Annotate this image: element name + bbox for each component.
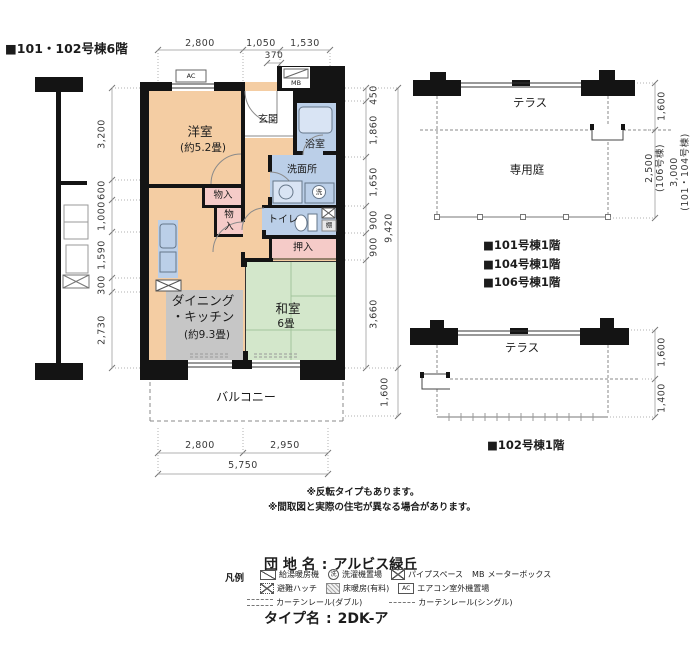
legend-title: 凡例 [225,570,244,584]
upper-terrace-label: テラス [513,96,547,111]
dim-left-4: 1,590 [98,240,109,270]
floorplan-sheet: ■101・102号棟6階 洋室 (約5.2畳) ダイニング ・キッチン (約9.… [0,0,700,650]
dim-right-total: 9,420 [385,213,396,243]
bath-label: 浴室 [305,139,325,152]
site-lower-diagram [410,318,658,421]
legend-ac-outdoor: AC エアコン室外機置場 [398,583,489,594]
bathtub-icon [299,107,332,133]
legend-hatch: 避難ハッチ [260,583,317,594]
sheet-title: ■101・102号棟6階 [5,38,128,57]
top-window [172,82,214,91]
dim-garden-101: 3,000 (101・104号棟) [670,133,692,211]
dim-left-5: 300 [98,275,109,295]
dim-top-sub: 370 [265,51,284,63]
caption-106: ■106号棟1階 [483,274,560,290]
dim-right-6: 3,660 [370,299,381,329]
legend-curtain-single: カーテンレール(シングル) [389,597,512,608]
balcony-label: バルコニー [216,390,276,406]
escape-hatch-legend-icon [260,583,274,594]
dim-right-5: 900 [370,237,381,257]
floor-heating-icon [326,583,340,594]
legend-pipe-space: パイプスペース [391,569,463,580]
dim-bottom-1: 2,800 [185,440,215,452]
upper-dim-terrace: 1,600 [658,91,669,121]
escape-hatch-icon [156,280,181,291]
dim-right-2: 1,860 [370,115,381,145]
estate-type-value: 2DK-ア [338,610,389,628]
site-upper-diagram [413,70,672,221]
dk-size: (約9.3畳) [184,329,230,343]
lower-terrace-label: テラス [505,341,539,356]
dim-top-1: 2,800 [185,38,215,50]
curtain-single-icon [389,602,415,603]
oshiire-label: 押入 [293,242,313,255]
hatch-x-icon [63,275,89,288]
dim-balcony-depth: 1,600 [381,377,392,407]
washer-mark-label: 洗 [316,188,323,196]
western-room-size: (約5.2畳) [180,142,226,156]
ac-label: AC [187,72,196,80]
sink-icon [273,181,302,203]
dim-top-3: 1,530 [290,38,320,50]
dim-left-1: 3,200 [98,119,109,149]
caption-104: ■104号棟1階 [483,256,560,272]
legend-row-1: 給湯暖房機 洗 洗濯機置場 パイプスペース MB メーターボックス [260,569,551,580]
lower-dim-front: 1,400 [658,383,669,413]
mb-label: MB [291,79,301,87]
water-heater-icon [260,570,276,580]
estate-type-label: タイプ名 [264,610,320,628]
legend-curtain-double: カーテンレール(ダブル) [247,597,362,608]
estate-type-colon: : [326,610,332,628]
dim-right-4: 900 [370,210,381,230]
mb-abbr: MB [472,570,484,579]
dim-left-6: 2,730 [98,315,109,345]
washroom-label: 洗面所 [287,164,317,177]
note-disclaimer: ※間取図と実際の住宅が異なる場合があります。 [268,502,476,514]
dim-top-2: 1,050 [246,38,276,50]
dim-right-1: 450 [370,85,381,105]
legend-row-2: 避難ハッチ 床暖房(有料) AC エアコン室外機置場 [260,583,489,594]
estate-type-row: タイプ名 : 2DK-ア [264,610,417,628]
toilet-label: トイレ [268,214,298,227]
western-room-label: 洋室 [187,124,212,140]
dim-bottom-total: 5,750 [228,460,258,472]
curtain-double-icon [247,599,273,606]
garden-gate-icon [590,124,625,140]
caption-101: ■101号棟1階 [483,237,560,253]
dim-left-3: 1,000 [98,201,109,231]
left-wall-section [35,77,89,380]
japanese-room-label: 和室 [275,301,300,317]
dim-left-2: 600 [98,180,109,200]
dim-bottom-2: 2,950 [270,440,300,452]
caption-102: ■102号棟1階 [487,437,564,453]
ac-legend-icon: AC [398,583,414,594]
legend-meter-box: MB メーターボックス [472,569,551,580]
kitchen-counter [158,220,178,278]
entrance-label: 玄関 [258,114,278,127]
legend-row-3: カーテンレール(ダブル) カーテンレール(シングル) [247,597,513,608]
pipe-space-legend-icon [391,569,405,580]
dim-garden-106: 2,500 (106号棟) [645,144,667,192]
laundry-circle-icon: 洗 [328,569,339,580]
legend-water-heater: 給湯暖房機 [260,569,319,580]
legend-laundry: 洗 洗濯機置場 [328,569,382,580]
pipe-space-icon [322,208,335,218]
note-reverse-type: ※反転タイプもあります。 [307,487,420,499]
dk-label: ダイニング ・キッチン [172,293,235,326]
terrace-gate-icon [420,372,450,389]
japanese-room-size: 6畳 [277,318,294,332]
shelf-label: 棚 [326,221,333,229]
garden-label: 専用庭 [510,163,545,178]
dim-right-3: 1,650 [370,167,381,197]
lower-dim-terrace: 1,600 [658,337,669,367]
monoire-b-label: 物 入 [224,210,234,235]
legend-floor-heating: 床暖房(有料) [326,583,389,594]
monoire-a-label: 物入 [213,190,232,202]
